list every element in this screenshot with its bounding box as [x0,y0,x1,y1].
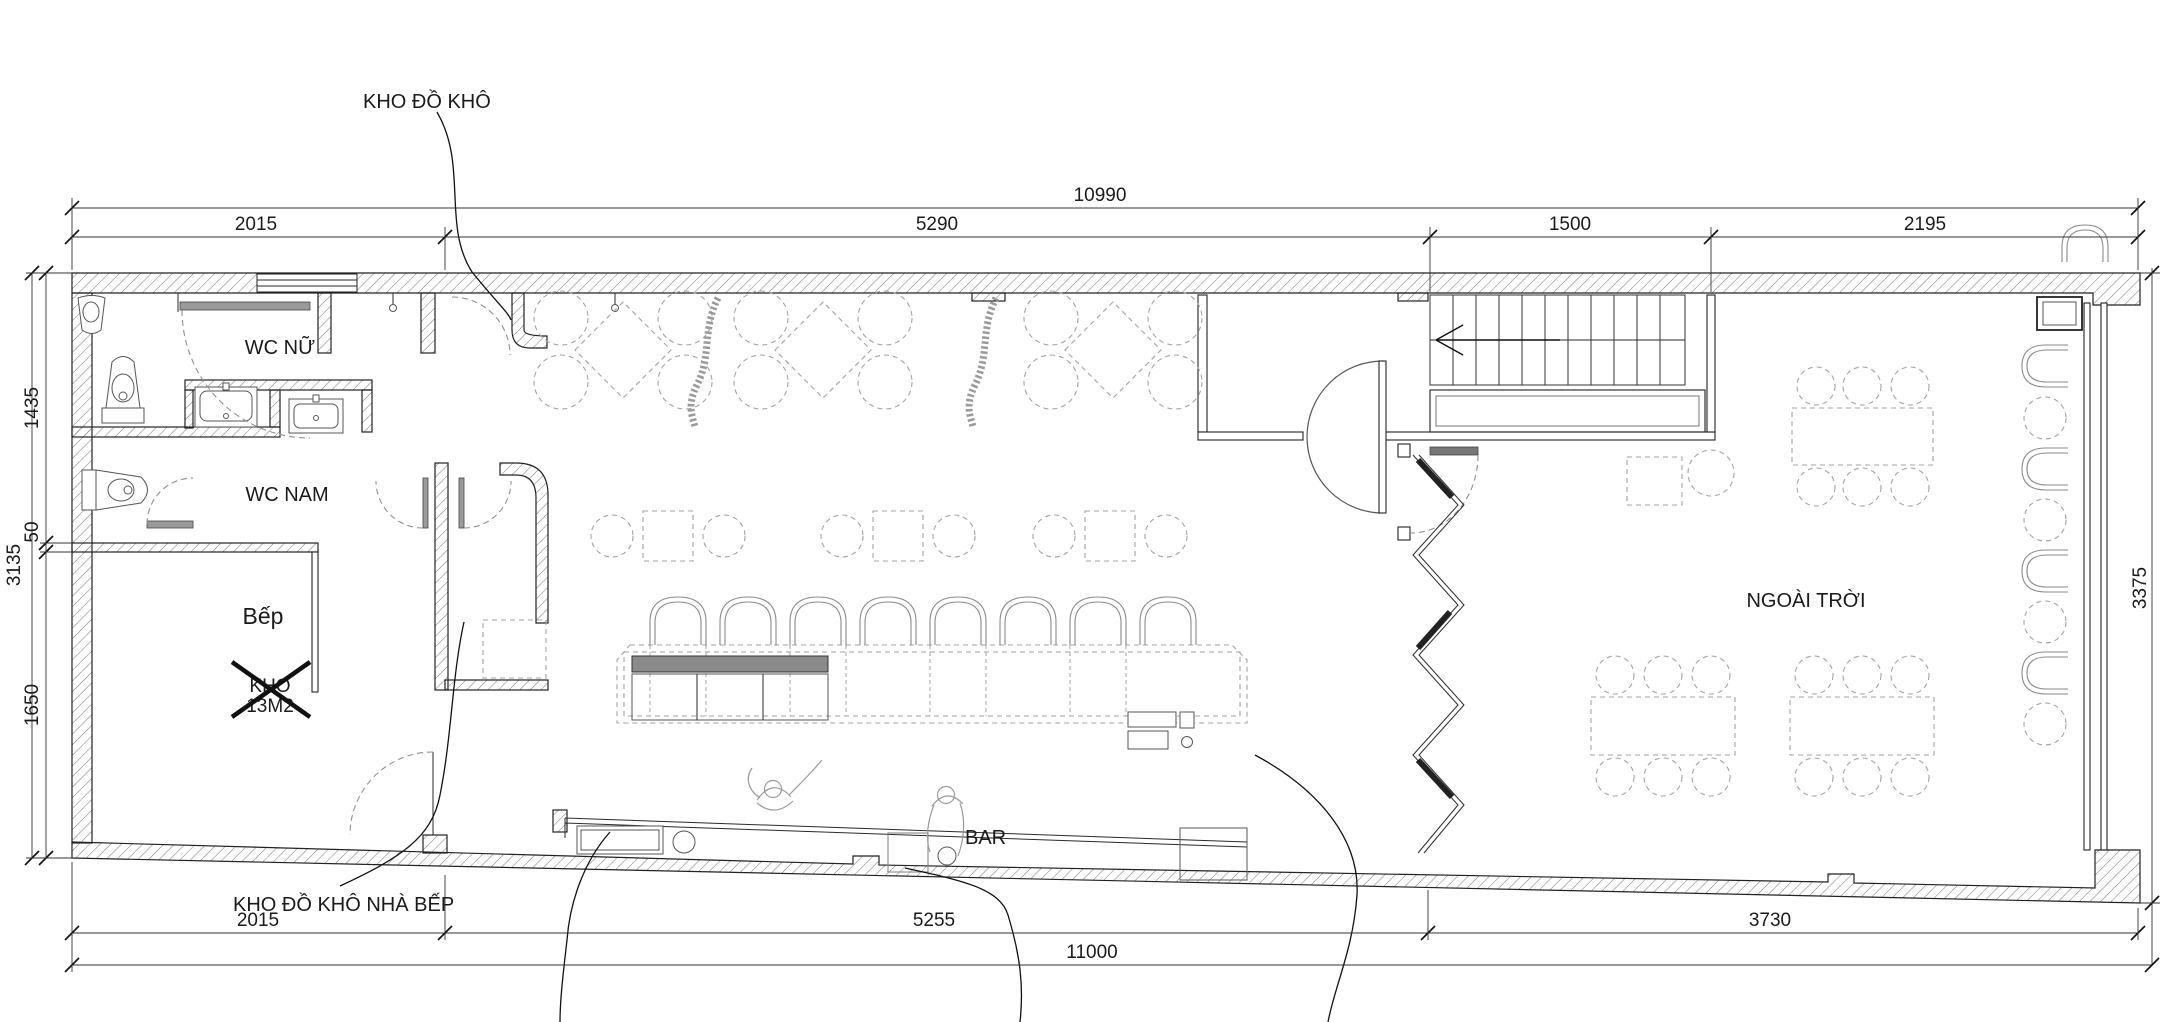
table-6-seats [1790,656,1934,796]
sink-icon [289,395,343,433]
annotation-labels: KHO ĐỒ KHÔ KHO ĐỒ KHÔ NHÀ BẾP WC NỮ WC N… [232,89,1866,916]
dim-left-seg-2: 1650 [22,684,43,726]
bar-counter [617,597,1247,749]
label-kitchen: Bếp [243,603,284,629]
table-4-seats [734,291,912,409]
kitchen-door [350,752,433,835]
floor-plan-canvas: 10990 2015 5290 1500 2195 3135 1435 50 1… [0,0,2168,1022]
label-kitchen-dry-storage: KHO ĐỒ KHÔ NHÀ BẾP [233,892,454,916]
table-6-seats [1792,367,1933,506]
dim-top-seg-2: 1500 [1549,214,1591,235]
table-4-seats [1024,291,1202,409]
dining-diamond-tables [534,291,1202,409]
urinal-icon [78,296,105,334]
dim-bottom-seg-2: 3730 [1749,910,1791,931]
table-6-seats [1591,656,1735,796]
interior-walls [72,293,2107,853]
dim-top-seg-0: 2015 [235,214,277,235]
top-wall-window [257,274,357,292]
dim-bottom-seg-1: 5255 [913,910,955,931]
small-square-table [1627,450,1734,505]
dim-top-total: 10990 [1074,185,1127,206]
label-dry-storage: KHO ĐỒ KHÔ [363,89,491,113]
dim-top-seg-3: 2195 [1904,214,1946,235]
toilet-icon [82,470,148,510]
curved-wall-lower [500,463,548,623]
wc-men-stall-door [147,478,193,528]
lounge-chairs-column [2022,345,2068,745]
folding-zigzag-door [1413,455,1464,853]
dim-right-total: 3375 [2130,567,2151,609]
label-wc-women: WC NỮ [245,335,315,359]
bar-equipment [632,656,1194,749]
label-outdoor: NGOÀI TRỜI [1746,589,1865,612]
sink-icon [195,383,257,427]
lounge-chair-top-right [2062,225,2108,262]
dim-left-seg-0: 1435 [22,387,43,429]
floor-plan-page: 10990 2015 5290 1500 2195 3135 1435 50 1… [0,0,2168,1022]
bar-stools [650,597,1196,645]
stair-direction-arrow-icon [1436,325,1560,355]
table-2-seats [1033,511,1187,561]
counter-sink [577,826,663,854]
label-bar: BAR [965,827,1006,849]
curved-wall-upper [512,293,547,348]
stair-landing [1430,390,1705,432]
table-2-seats [821,511,975,561]
storage-shelf [483,620,546,678]
dim-left-seg-1: 50 [22,521,43,542]
outdoor-furniture [1591,225,2108,796]
stair-room-swing-door [1307,361,1386,513]
crossed-out-storage-label: KHO 13M2 [232,662,310,717]
wc-women-fixtures [78,296,257,428]
person-figure [927,787,963,857]
outdoor-door [1398,444,1478,540]
column [2037,297,2082,330]
person-figure [748,760,822,810]
dim-bottom-total: 11000 [1066,942,1117,963]
toilet-icon [102,357,144,424]
dining-square-tables [591,511,1187,561]
dim-top-seg-1: 5290 [916,214,958,235]
exterior-walls [72,273,2140,903]
table-4-seats [534,291,712,409]
dim-left-total: 3135 [4,544,25,586]
stairs [1430,295,1705,432]
label-wc-men: WC NAM [245,484,328,506]
leader-lines [340,112,1357,1022]
wavy-screens [691,298,996,427]
table-2-seats [591,511,745,561]
